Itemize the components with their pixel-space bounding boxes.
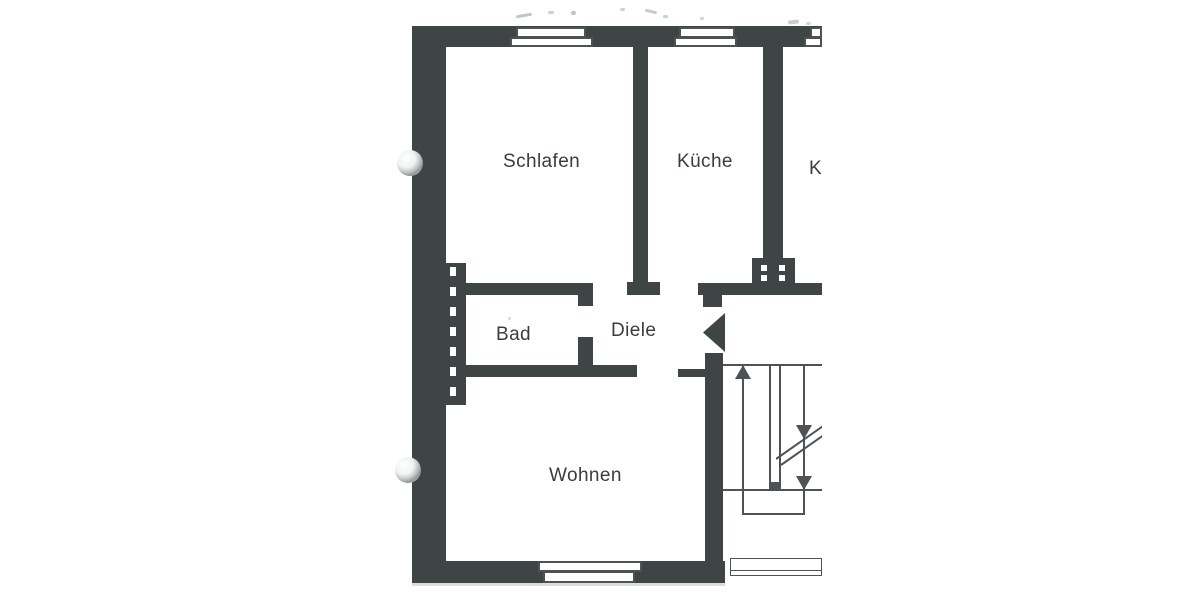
wall-schlafen-kueche-foot: [627, 282, 660, 295]
wall-exterior-left: [412, 26, 446, 583]
scan-smudge: [508, 317, 511, 320]
room-label-schlafen: Schlafen: [503, 151, 580, 173]
wall-bad-right-upper: [578, 295, 593, 306]
stair-break-line-clip: [776, 416, 822, 466]
room-label-kueche: Küche: [677, 151, 733, 173]
window-icon-schlafen-inner: [510, 37, 593, 47]
stair-landing-box-left: [742, 491, 744, 513]
wall-schlafen-kueche: [633, 47, 648, 282]
wall-bad-top: [463, 283, 593, 295]
scan-smudge: [663, 15, 668, 18]
block-vent-square: [761, 275, 767, 281]
room-label-diele: Diele: [611, 320, 656, 342]
hole-punch-icon: [395, 457, 421, 483]
scan-smudge: [788, 19, 799, 24]
scan-smudge: [548, 11, 554, 14]
room-label-wohnen: Wohnen: [549, 465, 622, 487]
scan-smudge: [620, 8, 625, 11]
scan-smudge: [516, 13, 532, 19]
scan-smudge: [645, 9, 657, 15]
entry-door-swing-icon: [703, 313, 725, 352]
block-vent-square: [779, 275, 785, 281]
scan-smudge: [806, 22, 811, 25]
scan-smudge: [571, 11, 576, 15]
floor-plan-scan: Schlafen Küche K Bad Diele Wohnen: [0, 0, 1200, 600]
wall-kueche-k-block: [752, 258, 795, 283]
stair-landing-box-bottom: [742, 513, 805, 515]
wall-stairwell: [705, 353, 723, 581]
room-label-k-cropped: K: [809, 158, 822, 180]
wall-kueche-k: [763, 45, 783, 258]
wall-wohnen-entry-stub: [678, 369, 706, 377]
stair-landing-box-right: [803, 491, 805, 513]
window-icon-kueche-inner: [674, 37, 737, 47]
stair-up-arrow-icon: [735, 365, 751, 379]
wall-bad-right-lower: [578, 337, 593, 365]
block-vent-square: [761, 265, 767, 271]
stair-down-arrow-icon: [796, 476, 812, 490]
installation-shaft-icon: [446, 263, 466, 405]
wall-entry-stub: [703, 295, 722, 307]
hole-punch-icon: [397, 150, 423, 176]
wall-bad-diele-bottom: [463, 365, 637, 377]
window-icon-wohnen-outer: [543, 571, 635, 583]
window-icon-k-inner-cropped: [804, 37, 822, 47]
room-label-bad: Bad: [496, 324, 531, 346]
wall-entry-top: [698, 283, 822, 295]
stair-stringer-cap: [771, 482, 779, 487]
wall-exterior-top: [412, 26, 822, 47]
shaft-dash-pattern: [450, 267, 456, 398]
scan-smudge: [700, 17, 704, 20]
scan-shadow-bottom: [412, 583, 725, 586]
stair-walkline-left: [742, 366, 744, 489]
block-vent-square: [779, 265, 785, 271]
window-icon-stairwell-inner-cropped: [730, 570, 822, 576]
